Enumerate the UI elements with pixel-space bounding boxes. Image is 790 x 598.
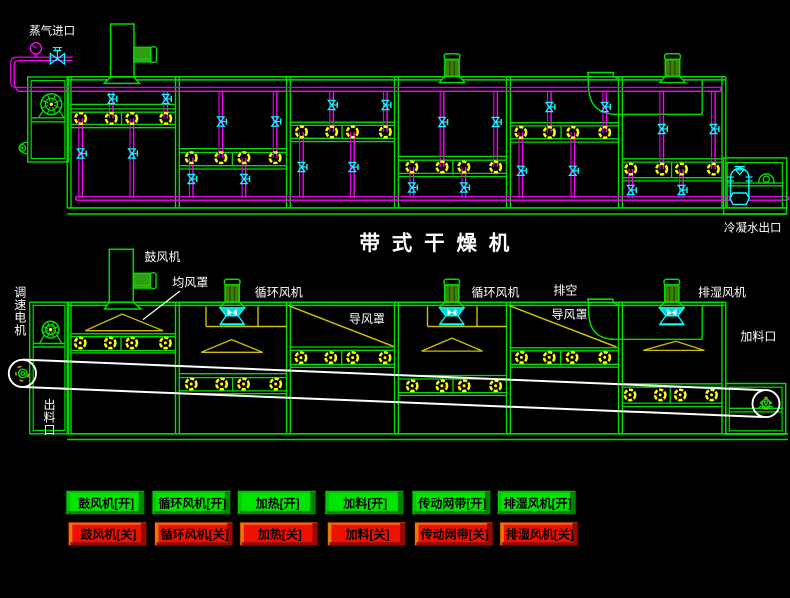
svg-text:加料[开]: 加料[开] [342,495,387,510]
svg-text:冷凝水出口: 冷凝水出口 [724,221,782,235]
svg-text:加料口: 加料口 [740,330,776,344]
svg-text:排湿风机: 排湿风机 [698,285,746,300]
svg-text:循环风机: 循环风机 [472,286,520,300]
svg-text:排湿风机[关]: 排湿风机[关] [506,527,574,542]
svg-text:均风罩: 均风罩 [172,276,208,290]
svg-text:传动网带[关]: 传动网带[关] [420,527,489,542]
svg-text:循环风机[开]: 循环风机[开] [158,495,226,510]
svg-text:加热[关]: 加热[关] [257,527,302,542]
svg-text:导风罩: 导风罩 [349,312,385,326]
svg-text:排空: 排空 [553,284,577,298]
svg-text:带式干燥机: 带式干燥机 [360,231,522,255]
svg-text:鼓风机[关]: 鼓风机[关] [80,527,136,542]
svg-text:口: 口 [44,423,56,437]
svg-text:鼓风机[开]: 鼓风机[开] [78,495,134,510]
svg-text:机: 机 [14,323,26,337]
svg-text:加热[开]: 加热[开] [255,495,300,510]
svg-text:排湿风机[开]: 排湿风机[开] [504,495,572,510]
svg-text:循环风机[关]: 循环风机[关] [161,527,229,542]
svg-text:蒸气进口: 蒸气进口 [29,23,75,37]
svg-text:导风罩: 导风罩 [552,308,588,322]
svg-text:循环风机: 循环风机 [255,286,303,300]
svg-text:传动网带[开]: 传动网带[开] [417,495,486,510]
svg-text:鼓风机: 鼓风机 [144,250,180,264]
svg-text:加料[关]: 加料[关] [345,527,390,542]
